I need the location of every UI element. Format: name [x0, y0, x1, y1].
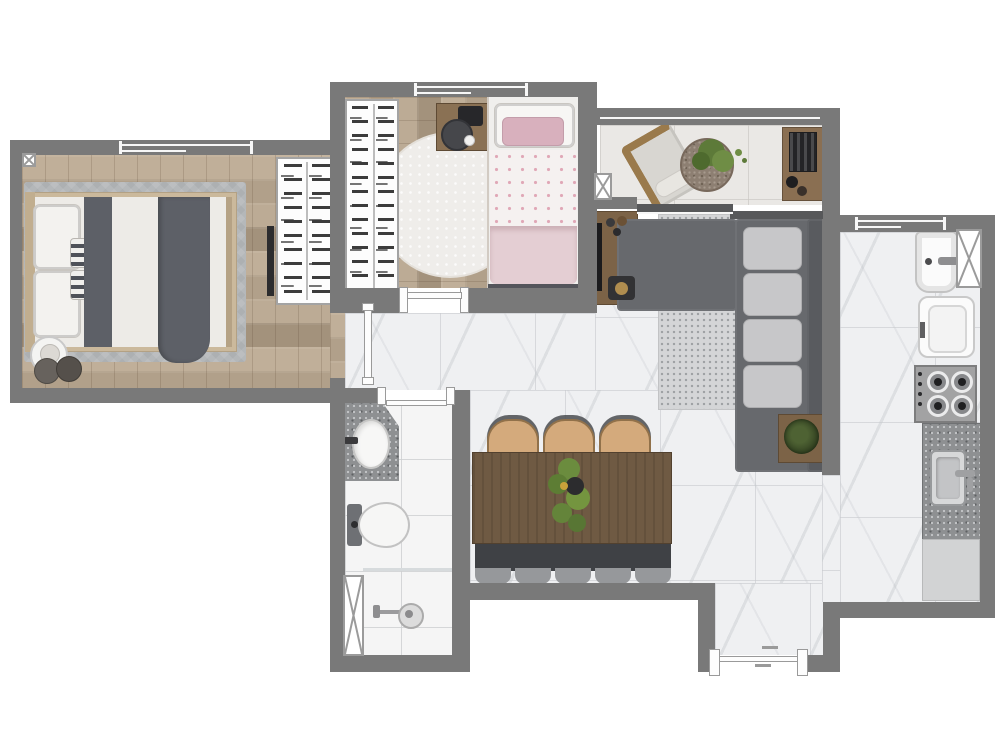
shower-glass-divider: [363, 568, 452, 571]
wardrobe: [345, 99, 399, 293]
plant-sprig: [735, 149, 742, 156]
decor-candle: [606, 218, 615, 227]
kitchen-window-pane: [856, 226, 901, 228]
window-frame: [119, 141, 122, 154]
bedroom-window-pane: [120, 150, 186, 152]
corner-marker: [22, 153, 36, 167]
glass-railing: [600, 117, 820, 119]
main-bedroom-door: [364, 310, 372, 378]
door-jamb: [797, 649, 808, 676]
door-jamb: [377, 387, 386, 405]
toilet-bowl: [358, 502, 410, 548]
window-frame: [943, 217, 946, 230]
entry-door-handle: [755, 664, 771, 667]
stove-knob: [918, 402, 922, 406]
shower-valve: [373, 605, 380, 618]
wall: [10, 140, 22, 403]
shower-glass-panel: [343, 575, 364, 656]
oval-basin: [352, 419, 390, 469]
sink-basin: [936, 457, 960, 499]
pink-pillow: [502, 117, 564, 146]
window-frame: [414, 83, 417, 96]
wall: [10, 140, 345, 155]
bench-cushion: [635, 568, 671, 584]
sliding-door-glass: [637, 212, 733, 214]
stove-knob: [918, 382, 922, 386]
sofa-cushion: [743, 365, 802, 408]
window-frame: [855, 217, 858, 230]
sofa-cushion: [743, 227, 802, 270]
wardrobe-hangers: [306, 162, 330, 300]
wall-tv-panel: [267, 226, 274, 296]
wall: [822, 108, 840, 475]
kitchen-window: [856, 220, 946, 222]
door-jamb: [399, 287, 408, 313]
dining-bench: [475, 544, 671, 571]
window-frame: [250, 141, 253, 154]
wall: [823, 602, 840, 657]
basin-faucet: [344, 437, 358, 444]
second-bedroom-door: [407, 292, 462, 299]
wall: [980, 215, 995, 618]
shower-drain-cap: [405, 610, 413, 618]
wall: [452, 583, 698, 600]
potted-plant: [784, 419, 819, 454]
stove-burner: [927, 395, 949, 417]
bench-cushion: [515, 568, 551, 584]
door-jamb: [446, 387, 455, 405]
bedroom2-window: [415, 86, 527, 88]
plant-sprig: [742, 158, 747, 163]
desk-mug: [464, 135, 475, 146]
sofa-cushion: [743, 273, 802, 316]
centerpiece-accent: [560, 482, 568, 490]
pouf: [56, 356, 82, 382]
decor-candle: [613, 228, 621, 236]
shaft-symbol: [594, 173, 612, 200]
wardrobe-hangers: [373, 104, 395, 288]
plant-leaves: [692, 152, 710, 170]
bedroom-window: [120, 144, 252, 146]
bench-cushion: [555, 568, 591, 584]
stove-knob: [918, 372, 922, 376]
grill-pot: [786, 176, 798, 188]
bench-cushion: [595, 568, 631, 584]
wall: [823, 602, 995, 618]
tv: [597, 223, 602, 291]
grill-pot: [797, 186, 807, 196]
bench-cushion: [475, 568, 511, 584]
wall: [330, 378, 345, 390]
stove-burner: [927, 371, 949, 393]
polka-dot-sheet: [490, 150, 577, 228]
bathroom-door: [386, 400, 447, 406]
bed-runner: [84, 197, 112, 347]
wall: [462, 288, 597, 313]
sliding-door-panel: [730, 211, 823, 219]
sofa-cushion: [743, 319, 802, 362]
wardrobe-hangers: [349, 104, 369, 288]
centerpiece-pot: [566, 477, 584, 495]
hallway-floor: [345, 313, 595, 390]
base-cabinet: [922, 539, 980, 601]
wardrobe: [276, 157, 334, 305]
door-jamb: [362, 377, 374, 385]
entry-floor: [715, 583, 823, 655]
wall: [330, 82, 597, 97]
wall: [10, 388, 382, 403]
plant-leaves: [712, 150, 734, 172]
pink-duvet: [490, 226, 577, 284]
main-bedroom-threshold: [330, 313, 345, 380]
sofa-chaise: [617, 219, 737, 311]
floor-plan: [0, 0, 1000, 755]
door-jamb: [460, 287, 469, 313]
stove-knob: [918, 392, 922, 396]
entry-door: [719, 656, 798, 662]
wall: [452, 390, 470, 672]
stove-burner: [951, 395, 973, 417]
laundry-drain: [925, 258, 932, 265]
wall: [330, 655, 470, 672]
kitchen-passage-floor: [822, 475, 840, 602]
shaft-symbol: [956, 229, 982, 288]
shower-arm: [378, 610, 400, 614]
decor-ball: [615, 282, 628, 295]
toilet-flush: [351, 521, 358, 528]
washer-control: [920, 322, 925, 338]
decor-candle: [617, 216, 627, 226]
stove-burner: [951, 371, 973, 393]
bed-blanket: [158, 197, 210, 363]
entry-door-handle: [762, 646, 778, 649]
sink-faucet: [955, 470, 975, 477]
window-frame: [525, 83, 528, 96]
washer-lid: [928, 305, 967, 353]
door-jamb: [709, 649, 720, 676]
bed-footboard: [226, 197, 232, 347]
sliding-door-panel: [637, 204, 733, 212]
grill-grate: [789, 132, 817, 172]
wardrobe-hangers: [280, 162, 302, 300]
bedroom2-window-pane: [415, 92, 471, 94]
sink-faucet-handle: [967, 477, 973, 492]
centerpiece-leaves: [568, 514, 586, 532]
